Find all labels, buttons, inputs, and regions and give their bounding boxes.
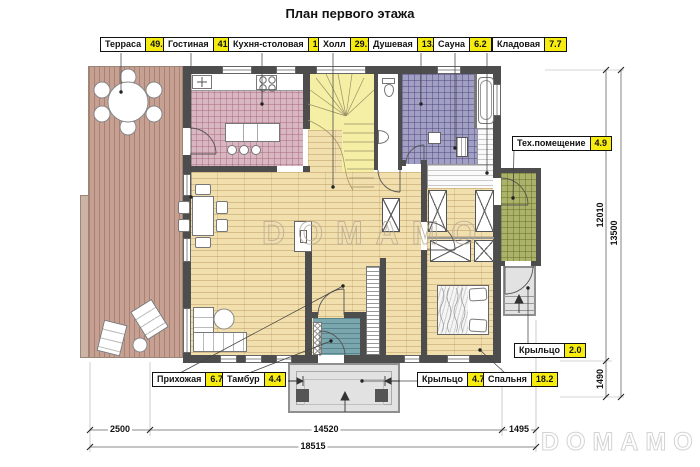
room-label-side-porch: Крыльцо 2.0 — [514, 343, 586, 358]
sauna-heater — [456, 137, 468, 157]
terrace-railing — [80, 195, 89, 358]
kitchen-stove — [256, 75, 277, 90]
wall-wc-left — [374, 74, 378, 170]
room-label-hallway: Прихожая 6.7 — [152, 372, 228, 387]
sofa-horizontal — [193, 332, 247, 352]
kitchen-sink — [192, 75, 212, 89]
kitchen-terrace-door-gap — [183, 128, 191, 155]
window-bedroom-bottom — [447, 355, 470, 363]
kitchen-island — [225, 123, 280, 142]
dim-bottom-center: 14520 — [311, 424, 340, 434]
room-label-shower-name: Душевая — [369, 38, 417, 51]
wall-hallway-right — [380, 258, 386, 358]
island-divider — [257, 124, 258, 141]
dim-right-total: 13500 — [609, 218, 619, 247]
wall-hall-bedroom-lower — [421, 250, 427, 363]
hall-floor-patch — [308, 130, 342, 174]
wall-shower-bottom-a — [402, 160, 406, 166]
window-kitchen-1 — [222, 66, 252, 74]
tambur-closet — [313, 322, 322, 355]
room-label-sauna-name: Сауна — [434, 38, 469, 51]
room-label-tambur: Тамбур 4.4 — [222, 372, 286, 387]
window-stairs — [316, 66, 366, 74]
room-label-tech-name: Тех.помещение — [513, 137, 590, 150]
sauna-bench-right — [477, 128, 494, 165]
room-label-storage-area: 7.7 — [544, 38, 566, 51]
dining-chair — [195, 237, 211, 248]
wall-tambur-top-a — [312, 312, 318, 318]
room-label-terrace: Терраса 49.4 — [100, 37, 173, 52]
side-porch-step — [504, 296, 535, 297]
room-label-hall-name: Холл — [319, 38, 350, 51]
wall-tech-top — [501, 168, 541, 173]
room-label-side-porch-area: 2.0 — [564, 344, 586, 357]
bed-pillow — [469, 287, 488, 301]
room-label-terrace-name: Терраса — [101, 38, 145, 51]
dim-right-lower: 1490 — [595, 367, 605, 391]
room-label-storage-name: Кладовая — [493, 38, 544, 51]
room-label-tech-area: 4.9 — [590, 137, 612, 150]
room-label-bedroom-area: 18.2 — [531, 373, 558, 386]
bed-pillow — [469, 318, 488, 332]
wall-kitchen-living — [190, 166, 277, 172]
wall-tech-right — [536, 168, 541, 266]
room-label-side-porch-name: Крыльцо — [515, 344, 564, 357]
dim-bottom-total: 18515 — [298, 441, 327, 451]
side-porch — [503, 266, 536, 316]
room-label-tambur-area: 4.4 — [264, 373, 286, 386]
porch-column — [375, 389, 388, 402]
dining-chair — [195, 184, 211, 195]
window-bath-right — [493, 84, 501, 116]
hallway-shelves — [366, 266, 380, 355]
porch-inner-outline-2 — [304, 379, 384, 405]
side-porch-door-gap — [505, 261, 531, 266]
window-living-left-3 — [183, 308, 191, 353]
bed-blanket — [438, 286, 468, 334]
dining-chair — [178, 201, 190, 214]
room-label-bedroom-name: Спальня — [484, 373, 531, 386]
wall-kitchen-stairs — [303, 74, 310, 129]
wall-kitchen-living-stub — [303, 166, 310, 172]
room-label-tech: Тех.помещение 4.9 — [512, 136, 612, 151]
room-label-storage: Кладовая 7.7 — [492, 37, 567, 52]
side-porch-step — [504, 303, 535, 304]
floor-plan-canvas: План первого этажа — [0, 0, 700, 467]
tech-room-floor — [501, 173, 536, 261]
room-label-kitchen-name: Кухня-столовая — [229, 38, 308, 51]
dining-chair — [216, 219, 228, 232]
dining-chair — [216, 201, 228, 214]
room-label-tambur-name: Тамбур — [223, 373, 264, 386]
room-label-living-name: Гостиная — [164, 38, 213, 51]
wall-hall-bedroom-upper — [421, 160, 427, 222]
window-living-bottom-2 — [245, 355, 262, 363]
side-porch-step — [504, 310, 535, 311]
room-label-hallway-name: Прихожая — [153, 373, 205, 386]
watermark-corner: DOMAMO — [541, 428, 700, 457]
entrance-door-gap — [318, 355, 344, 363]
wall-wc-right — [398, 74, 402, 170]
island-divider — [243, 124, 244, 141]
bathtub-inner — [480, 80, 492, 120]
tech-room-door-gap — [493, 178, 501, 205]
room-label-entrance-porch-name: Крыльцо — [418, 373, 467, 386]
watermark-center: DOMAMO — [262, 215, 489, 252]
room-label-bedroom: Спальня 18.2 — [483, 372, 558, 387]
window-living-left-2 — [183, 238, 191, 262]
dining-chair — [178, 219, 190, 232]
window-living-bottom-3 — [276, 355, 292, 363]
porch-column — [296, 389, 309, 402]
shower-tray — [428, 132, 441, 144]
dim-right-main: 12010 — [595, 200, 605, 229]
dim-bottom-left: 2500 — [108, 424, 132, 434]
window-living-bottom-1 — [220, 355, 237, 363]
page-title: План первого этажа — [0, 6, 700, 21]
wall-bath-divider — [474, 74, 477, 128]
room-label-sauna-area: 6.2 — [469, 38, 491, 51]
sauna-bench-bottom — [427, 164, 494, 189]
room-label-sauna: Сауна 6.2 — [433, 37, 492, 52]
window-living-left-1 — [183, 174, 191, 196]
window-kitchen-2 — [276, 66, 296, 74]
room-label-entrance-porch: Крыльцо 4.7 — [417, 372, 489, 387]
window-shower — [437, 66, 461, 74]
stairs-upper — [308, 74, 374, 132]
dim-bottom-right: 1495 — [507, 424, 531, 434]
dining-table — [192, 196, 214, 236]
window-hall-bottom — [404, 355, 420, 363]
